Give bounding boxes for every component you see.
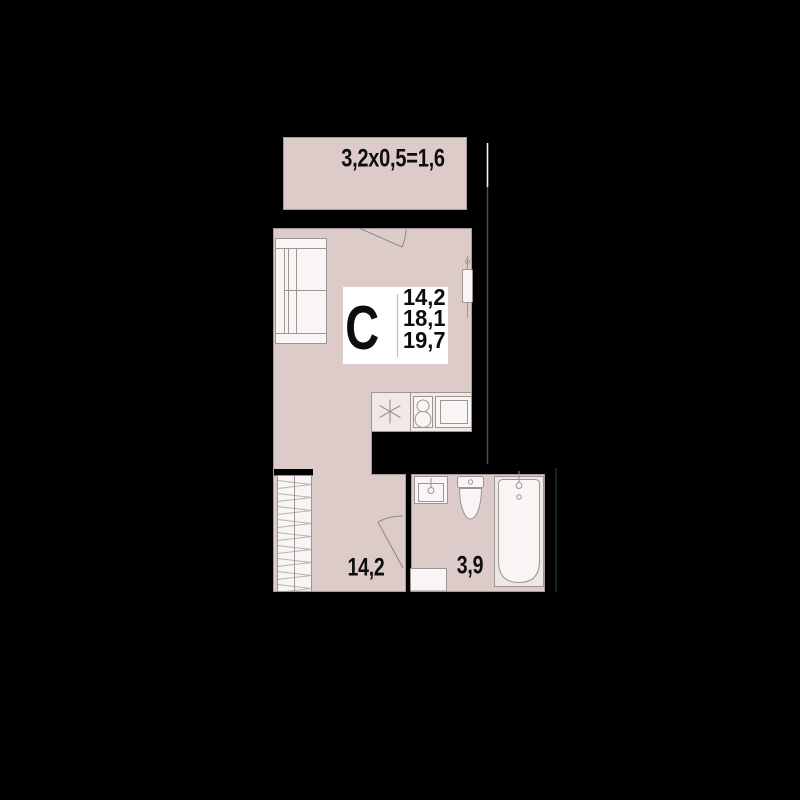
unit-area-values: 14,2 18,1 19,7 xyxy=(403,287,446,351)
floor-plan-canvas: 3,2x0,5=1,6 С 14,2 18,1 19,7 14,2 3,9 xyxy=(0,0,800,800)
washing-machine-icon xyxy=(411,569,447,592)
wall-stub xyxy=(274,469,313,476)
bathroom-area-label: 3,9 xyxy=(457,552,483,581)
stove-icon xyxy=(414,397,433,428)
kitchen-block xyxy=(372,393,472,432)
washbasin-icon xyxy=(415,477,448,504)
sofa-icon xyxy=(276,239,327,344)
wardrobe-icon xyxy=(278,476,312,592)
fridge-icon xyxy=(436,397,472,428)
bathtub-icon xyxy=(495,471,544,587)
unit-area-value-3: 19,7 xyxy=(403,330,446,351)
floor-plan-drawing xyxy=(0,0,800,800)
hallway-area-label: 14,2 xyxy=(347,554,384,583)
unit-type-letter: С xyxy=(345,298,379,360)
balcony-dimension-label: 3,2x0,5=1,6 xyxy=(341,145,445,174)
